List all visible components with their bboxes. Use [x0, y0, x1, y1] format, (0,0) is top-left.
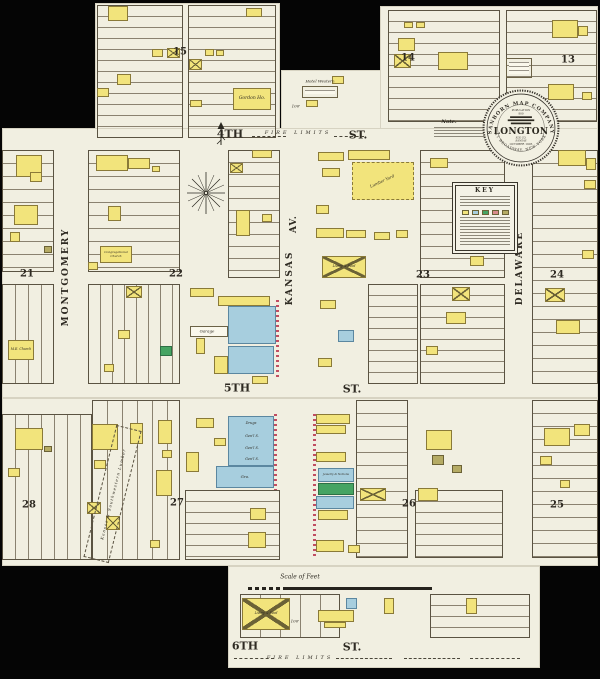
map-sheet-piece [2, 128, 598, 398]
sanborn-seal: SANBORN MAP COMPANY 11 BROADWAY. NEW YOR… [482, 89, 560, 167]
key-text-lines [460, 217, 510, 247]
scale-bar [286, 587, 432, 590]
sanborn-map-sheet: Gordon Ho.M.E. ChurchCongregational Chur… [0, 0, 600, 679]
map-key-title: KEY [457, 187, 513, 194]
key-swatch-adobe [502, 210, 509, 215]
map-key-box: KEY [452, 182, 518, 254]
seal-fine-print-bar [508, 119, 535, 121]
seal-population-label: POPULATION [512, 108, 531, 112]
key-swatch-stone [472, 210, 479, 215]
seal-date-line: OCTOBER 1905 [510, 142, 533, 146]
key-swatch-special [482, 210, 489, 215]
seal-population-value: 800 [518, 111, 523, 115]
compass-rose [186, 172, 226, 216]
scale-bar [248, 587, 286, 590]
seal-fine-print-bar [511, 123, 531, 125]
map-sheet-piece [228, 566, 540, 668]
seal-fine-print-bar [510, 116, 532, 118]
map-sheet-piece [95, 3, 280, 143]
key-swatch-brick [492, 210, 499, 215]
key-swatch-frame [462, 210, 469, 215]
north-arrow-icon [216, 122, 226, 146]
seal-town-name: LONGTON [494, 127, 549, 137]
key-color-swatches [457, 210, 513, 215]
key-text-lines [460, 196, 510, 208]
